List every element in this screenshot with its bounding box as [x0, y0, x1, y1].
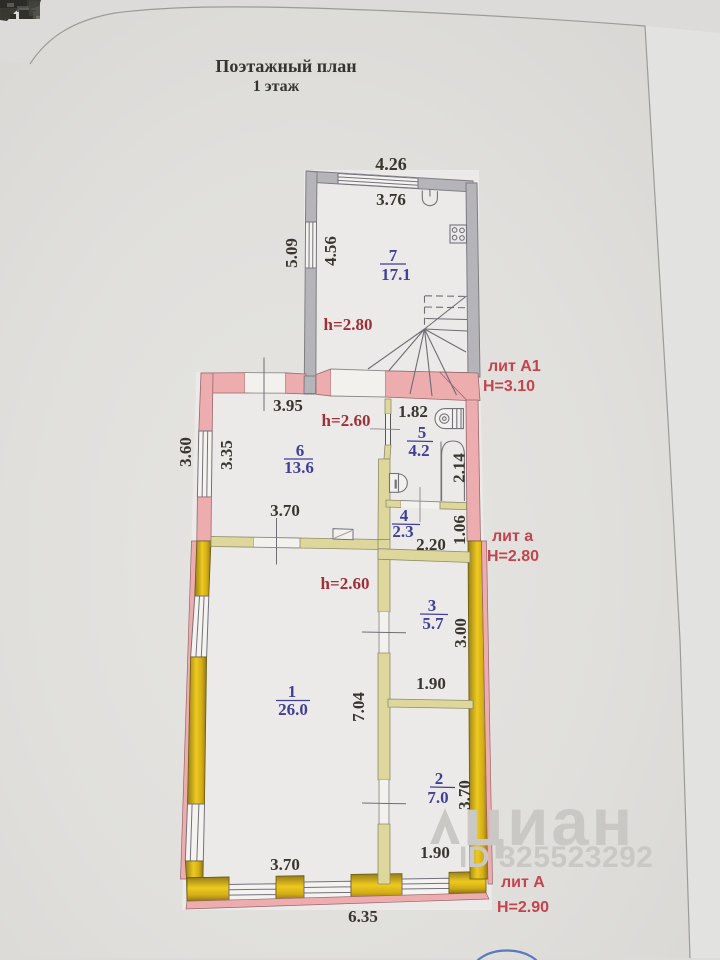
- svg-text:3.60: 3.60: [176, 437, 195, 467]
- svg-text:Поэтажный план: Поэтажный план: [215, 56, 356, 76]
- svg-text:Н=2.90: Н=2.90: [497, 899, 549, 916]
- svg-text:Н=2.80: Н=2.80: [487, 548, 539, 565]
- svg-text:1.90: 1.90: [416, 674, 446, 693]
- svg-text:1.82: 1.82: [398, 402, 428, 421]
- svg-text:2.14: 2.14: [450, 453, 469, 483]
- svg-text:3.70: 3.70: [270, 855, 300, 874]
- svg-text:7.0: 7.0: [427, 788, 448, 807]
- svg-text:1: 1: [288, 682, 297, 701]
- svg-text:4.56: 4.56: [321, 236, 340, 266]
- svg-text:ID 325523292: ID 325523292: [459, 841, 654, 874]
- svg-text:4.26: 4.26: [375, 154, 407, 174]
- svg-text:3.35: 3.35: [217, 440, 236, 470]
- svg-text:h=2.80: h=2.80: [324, 315, 373, 334]
- svg-text:1 этаж: 1 этаж: [253, 78, 300, 95]
- svg-text:13.6: 13.6: [284, 458, 314, 477]
- svg-text:h=2.60: h=2.60: [321, 574, 370, 593]
- svg-text:Н=3.10: Н=3.10: [483, 378, 535, 395]
- svg-text:1.90: 1.90: [420, 843, 450, 862]
- svg-text:3.00: 3.00: [451, 618, 470, 648]
- svg-text:17.1: 17.1: [381, 265, 411, 284]
- svg-text:4.2: 4.2: [408, 441, 429, 460]
- svg-text:26.0: 26.0: [278, 700, 308, 719]
- svg-text:3: 3: [428, 596, 437, 615]
- svg-text:лит А1: лит А1: [488, 358, 541, 375]
- svg-text:7: 7: [389, 246, 398, 265]
- svg-text:h=2.60: h=2.60: [322, 411, 371, 430]
- svg-text:лит А: лит А: [501, 874, 545, 891]
- svg-text:3.95: 3.95: [273, 396, 303, 415]
- svg-text:2.20: 2.20: [416, 535, 446, 554]
- svg-text:2.3: 2.3: [392, 522, 413, 541]
- svg-text:3.70: 3.70: [270, 501, 300, 520]
- svg-text:1.06: 1.06: [450, 515, 469, 545]
- svg-text:6.35: 6.35: [348, 907, 378, 926]
- svg-text:7.04: 7.04: [349, 692, 368, 722]
- svg-text:3.76: 3.76: [376, 190, 406, 209]
- svg-text:2: 2: [435, 769, 444, 788]
- svg-text:лит а: лит а: [492, 528, 533, 545]
- svg-text:5.7: 5.7: [422, 614, 444, 633]
- svg-text:5.09: 5.09: [282, 238, 301, 268]
- svg-text:5: 5: [418, 423, 427, 442]
